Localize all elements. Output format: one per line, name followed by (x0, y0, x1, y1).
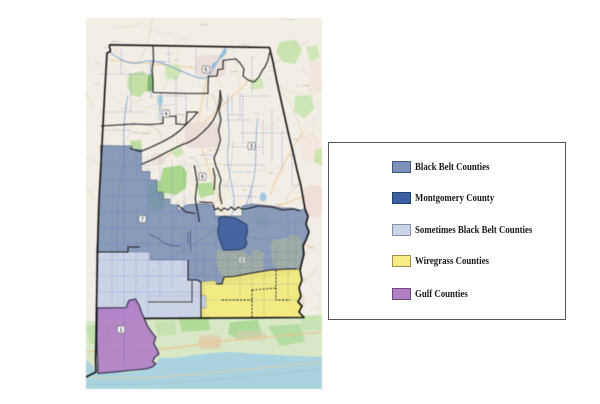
svg-text:5: 5 (205, 67, 208, 73)
svg-text:3: 3 (250, 144, 253, 150)
svg-text:4: 4 (165, 111, 168, 117)
svg-text:7: 7 (141, 217, 144, 223)
svg-text:6: 6 (201, 174, 204, 180)
svg-text:2: 2 (241, 258, 244, 264)
svg-text:1: 1 (120, 327, 123, 333)
